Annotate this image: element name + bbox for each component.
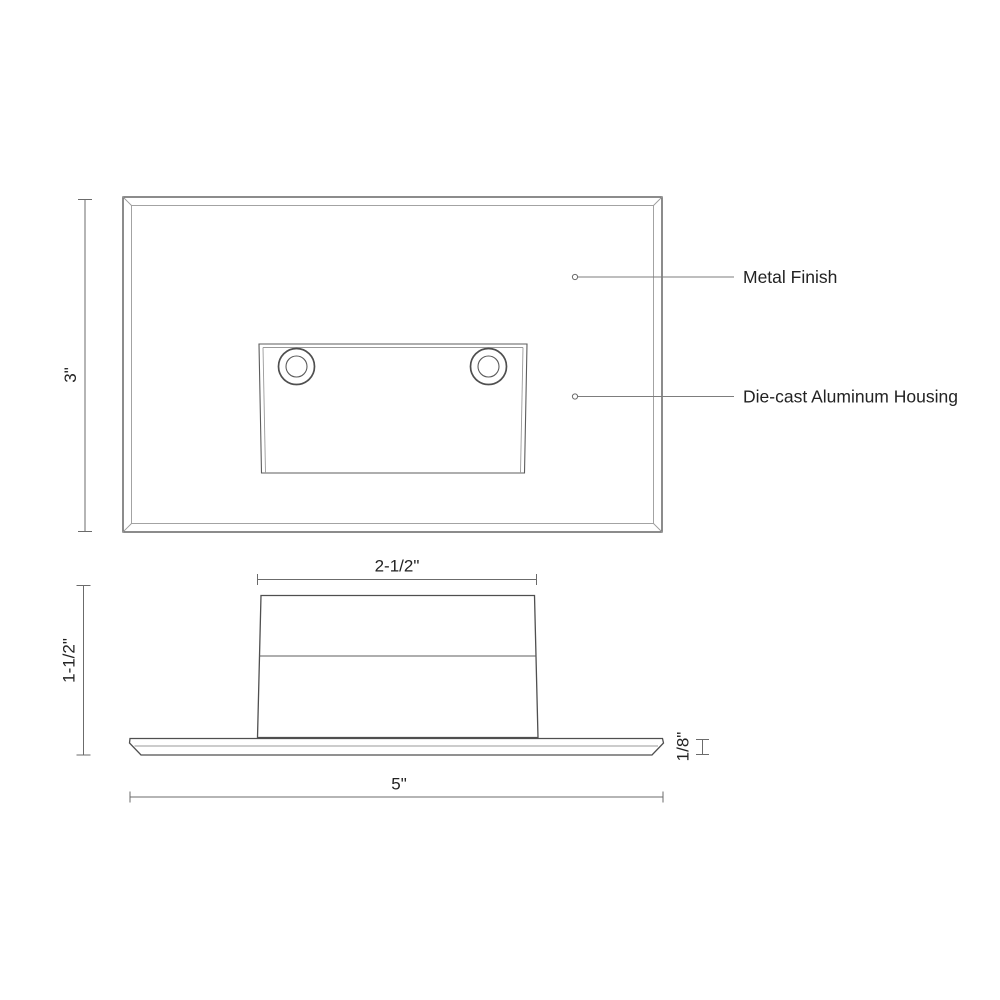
screw-left-outer-ring <box>279 349 315 385</box>
technical-drawing: 3" Metal Finish Die-cast Aluminum Housin… <box>0 0 1000 1000</box>
screw-left-inner-ring <box>286 356 307 377</box>
annotation-metal-finish: Metal Finish <box>743 267 837 287</box>
dimension-label-plate-thickness: 1/8" <box>674 732 693 762</box>
leader-metal-finish-dot <box>572 274 577 279</box>
screw-left <box>279 349 315 385</box>
faceplate-corner-bevels <box>123 197 662 532</box>
annotation-housing: Die-cast Aluminum Housing <box>743 387 958 407</box>
faceplate-outer-edge <box>123 197 662 532</box>
base-plate <box>130 739 664 756</box>
dimension-plate-width: 5" <box>130 775 663 803</box>
dimension-side-height: 1-1/2" <box>60 586 91 756</box>
front-view: 3" Metal Finish Die-cast Aluminum Housin… <box>61 197 958 532</box>
dimension-label-plate-width: 5" <box>391 775 407 794</box>
recess-window <box>259 344 527 473</box>
recess-outline <box>259 344 527 473</box>
recess-bevel-left <box>263 348 266 474</box>
dimension-label-housing-width: 2-1/2" <box>375 557 420 576</box>
leader-housing-dot <box>572 394 577 399</box>
dimension-front-height: 3" <box>61 200 92 532</box>
leader-metal-finish: Metal Finish <box>572 267 837 287</box>
screw-right-outer-ring <box>471 349 507 385</box>
leader-housing: Die-cast Aluminum Housing <box>572 387 958 407</box>
housing-profile <box>258 596 539 738</box>
dimension-label-front-height: 3" <box>61 367 80 383</box>
recess-bevel-right <box>521 348 524 474</box>
dimension-housing-width: 2-1/2" <box>258 557 537 586</box>
drawing-canvas: 3" Metal Finish Die-cast Aluminum Housin… <box>0 0 1000 1000</box>
dimension-plate-thickness: 1/8" <box>674 732 710 762</box>
side-view: 2-1/2" 1-1/2" 1/8" 5" <box>60 557 710 803</box>
dimension-label-side-height: 1-1/2" <box>60 638 79 683</box>
base-plate-outline <box>130 739 664 756</box>
faceplate-bevel-edge <box>132 206 654 524</box>
screw-right <box>471 349 507 385</box>
screw-right-inner-ring <box>478 356 499 377</box>
